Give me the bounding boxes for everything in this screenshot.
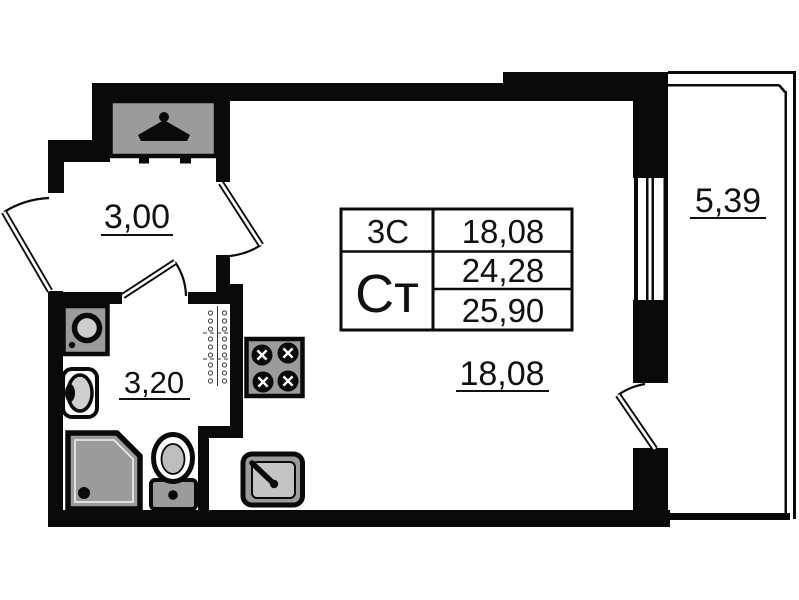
balcony-door (618, 384, 655, 449)
area-table: 3С Ст 18,08 24,28 25,90 (341, 209, 572, 330)
main-room-area-label: 18,08 (459, 355, 544, 393)
table-plan-code: Ст (355, 264, 419, 324)
table-area-with-balcony: 25,90 (462, 292, 545, 329)
wardrobe (111, 101, 217, 164)
hallway-area-label: 3,00 (104, 198, 170, 236)
table-unit-area: 18,08 (462, 213, 545, 250)
main-room-door (221, 183, 261, 256)
washing-machine-icon (64, 306, 108, 354)
toilet-icon (151, 435, 196, 510)
table-area-without-balcony: 24,28 (462, 252, 545, 289)
table-unit-type: 3С (367, 213, 409, 250)
stove-icon (247, 339, 303, 396)
window-icon (634, 178, 668, 300)
floor-plan: 3С Ст 18,08 24,28 25,90 3,00 3,20 18,08 … (0, 0, 799, 600)
balcony-outline (668, 71, 796, 520)
floor-plan-drawing: 3С Ст 18,08 24,28 25,90 3,00 3,20 18,08 … (0, 0, 799, 600)
bathroom-area-label: 3,20 (124, 365, 184, 400)
shower-icon (68, 433, 140, 509)
vent-shaft (203, 306, 231, 386)
entrance-door (4, 198, 50, 291)
kitchen-sink-icon (243, 454, 303, 505)
wash-basin-icon (63, 369, 97, 417)
balcony-area-label: 5,39 (695, 182, 761, 220)
bathroom-door (123, 262, 186, 296)
